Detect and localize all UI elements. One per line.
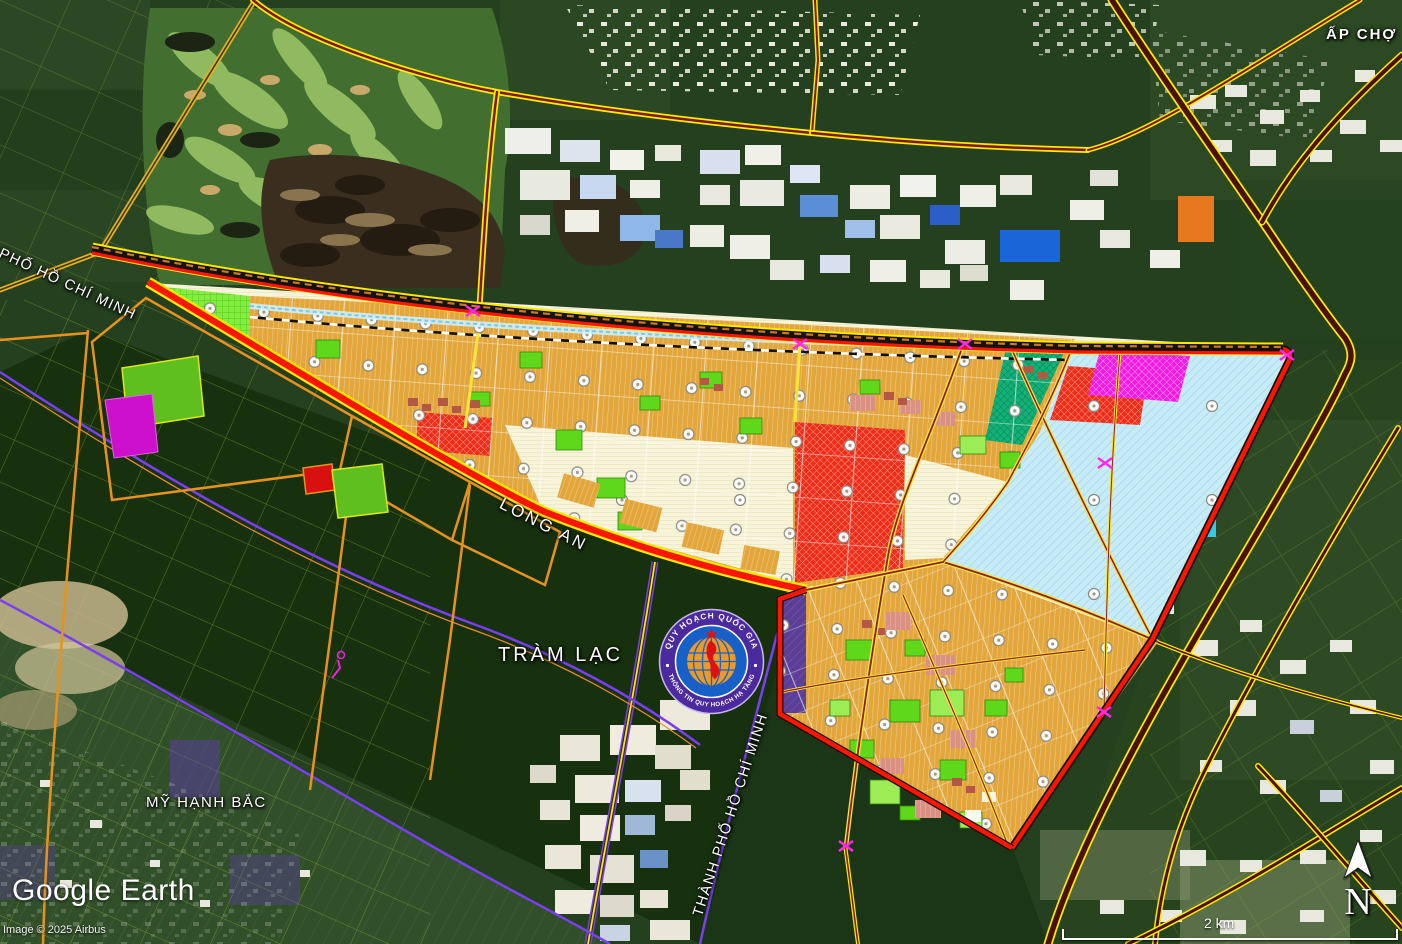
place-label-tram-lac: TRÀM LẠC	[498, 644, 623, 667]
north-arrow-icon	[1340, 840, 1376, 880]
planning-agency-badge: QUY HOẠCH QUỐC GIA THÔNG TIN QUY HOẠCH H…	[658, 608, 765, 715]
north-label: N	[1336, 883, 1380, 921]
imagery-copyright: Image © 2025 Airbus	[3, 924, 106, 936]
north-compass: N	[1336, 840, 1380, 940]
place-label-ap-cho: ẤP CHỢ	[1326, 26, 1397, 43]
google-earth-logo: Google Earth	[12, 874, 195, 908]
place-label-my-hanh-bac: MỸ HẠNH BẮC	[146, 794, 267, 811]
badge-emblem-icon: QUY HOẠCH QUỐC GIA THÔNG TIN QUY HOẠCH H…	[658, 608, 765, 715]
map-viewport[interactable]: ẤP CHỢ TRÀM LẠC MỸ HẠNH BẮC LONG AN THÀN…	[0, 0, 1402, 944]
